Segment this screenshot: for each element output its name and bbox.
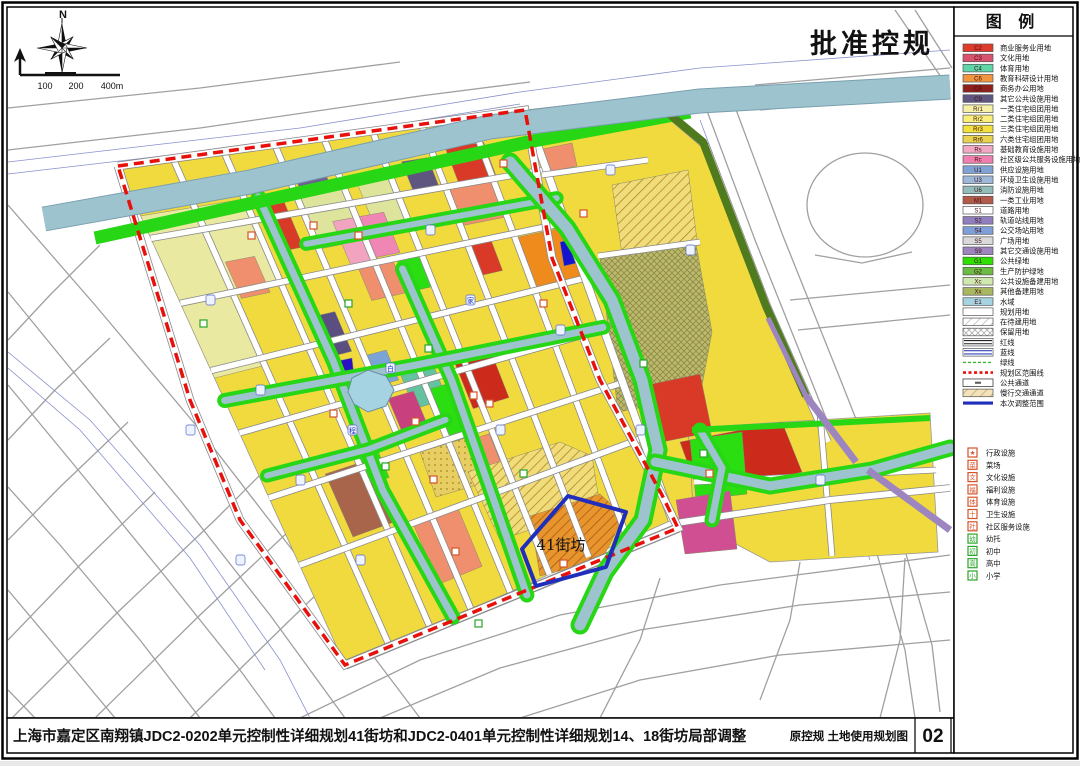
sheet-number: 02	[922, 726, 943, 747]
svg-text:C3: C3	[974, 56, 982, 62]
svg-text:高中: 高中	[986, 559, 1001, 568]
svg-text:U1: U1	[974, 168, 982, 174]
svg-text:菜场: 菜场	[986, 461, 1001, 470]
legend-entry: 在待建用地	[963, 318, 1037, 327]
svg-text:家: 家	[467, 296, 474, 305]
map-canvas: 白程家 41街坊 N 100 200 400m 批准控规 上海市嘉定区南翔镇JD…	[0, 0, 1080, 761]
svg-text:轨道站线用地: 轨道站线用地	[1000, 216, 1044, 225]
svg-text:社: 社	[969, 522, 976, 531]
svg-text:E1: E1	[974, 300, 982, 306]
svg-text:十: 十	[969, 510, 976, 519]
legend-facility-entry: 社社区服务设施	[968, 522, 1030, 532]
svg-text:蓝线: 蓝线	[1000, 348, 1015, 357]
svg-text:慢行交通通道: 慢行交通通道	[1000, 389, 1044, 398]
svg-text:六类住宅组团用地: 六类住宅组团用地	[1000, 135, 1059, 144]
svg-text:程: 程	[349, 426, 356, 435]
svg-text:C6: C6	[974, 76, 982, 82]
block41-label: 41街坊	[536, 536, 585, 554]
svg-text:道路用地: 道路用地	[1000, 206, 1030, 215]
svg-text:S5: S5	[974, 239, 982, 245]
svg-text:高: 高	[969, 559, 976, 568]
svg-text:公共设施备建用地: 公共设施备建用地	[1000, 277, 1059, 286]
map-area: 白程家 41街坊	[8, 10, 952, 718]
svg-text:U6: U6	[974, 188, 982, 194]
compass-rose-icon	[37, 18, 87, 73]
legend-entry: C6教育科研设计用地	[963, 74, 1059, 83]
svg-text:公交场站用地: 公交场站用地	[1000, 226, 1044, 235]
svg-text:C8: C8	[974, 87, 982, 93]
legend-facility-entry: 十卫生设施	[968, 510, 1016, 520]
svg-text:白: 白	[387, 364, 394, 373]
svg-text:其它公共设施用地: 其它公共设施用地	[1000, 94, 1059, 103]
svg-text:Rr2: Rr2	[973, 117, 983, 123]
svg-text:S2: S2	[974, 219, 982, 225]
svg-text:教育科研设计用地: 教育科研设计用地	[1000, 74, 1059, 83]
svg-text:一类工业用地: 一类工业用地	[1000, 196, 1044, 205]
svg-text:文化设施: 文化设施	[986, 473, 1016, 482]
scale-label-400m: 400m	[101, 81, 124, 91]
drawing-title: 上海市嘉定区南翔镇JDC2-0202单元控制性详细规划41街坊和JDC2-040…	[13, 727, 747, 745]
svg-text:基础教育设施用地: 基础教育设施用地	[1000, 145, 1059, 154]
svg-text:本次调整范围: 本次调整范围	[1000, 399, 1044, 408]
svg-text:社区级公共服务设施用地: 社区级公共服务设施用地	[1000, 155, 1080, 164]
scale-label-100: 100	[37, 81, 52, 91]
svg-text:G2: G2	[974, 269, 983, 275]
svg-text:消防设施用地: 消防设施用地	[1000, 186, 1044, 195]
legend-facility-entry: 福福利设施	[968, 485, 1016, 495]
legend-entry: M1一类工业用地	[963, 196, 1044, 205]
legend-entry: Rr6六类住宅组团用地	[963, 135, 1059, 144]
legend-entry: U1供应设施用地	[963, 165, 1044, 174]
svg-text:二类住宅组团用地: 二类住宅组团用地	[1000, 115, 1059, 124]
svg-text:水域: 水域	[1000, 297, 1015, 306]
svg-text:Xx: Xx	[974, 290, 981, 296]
scale-label-200: 200	[68, 81, 83, 91]
svg-text:★: ★	[970, 449, 976, 457]
svg-text:一类住宅组团用地: 一类住宅组团用地	[1000, 104, 1059, 113]
legend-entry: C9其它公共设施用地	[963, 94, 1059, 103]
svg-text:Rr6: Rr6	[973, 137, 983, 143]
legend-entry: C2商业服务业用地	[963, 44, 1052, 53]
legend-entry: 红线	[963, 338, 1015, 347]
svg-text:小: 小	[969, 571, 976, 580]
svg-text:福利设施: 福利设施	[986, 485, 1016, 494]
legend-entry: U3环境卫生设施用地	[963, 175, 1059, 184]
svg-text:Rs: Rs	[974, 148, 981, 154]
svg-text:卫生设施: 卫生设施	[986, 510, 1016, 519]
svg-text:其它交通设施用地: 其它交通设施用地	[1000, 247, 1059, 256]
svg-text:行政设施: 行政设施	[986, 449, 1016, 458]
svg-text:公共通道: 公共通道	[1000, 378, 1030, 387]
svg-text:M1: M1	[974, 198, 983, 204]
legend-facility-entry: ★行政设施	[968, 448, 1016, 458]
svg-text:初: 初	[969, 546, 976, 555]
svg-text:环境卫生设施用地: 环境卫生设施用地	[1000, 175, 1059, 184]
svg-text:初中: 初中	[986, 547, 1001, 556]
legend-title: 图 例	[986, 12, 1040, 31]
svg-text:Rc: Rc	[974, 158, 981, 164]
svg-text:商务办公用地: 商务办公用地	[1000, 84, 1044, 93]
svg-text:体育用地: 体育用地	[1000, 64, 1030, 73]
svg-text:S1: S1	[974, 208, 982, 214]
svg-text:S4: S4	[974, 229, 982, 235]
svg-text:S9: S9	[974, 249, 982, 255]
svg-text:保留用地: 保留用地	[1000, 328, 1030, 337]
svg-text:文: 文	[969, 473, 976, 482]
legend-entry: 慢行交通通道	[963, 389, 1044, 398]
svg-text:公共绿地: 公共绿地	[1000, 257, 1030, 266]
legend-entry: E1水域	[963, 297, 1015, 306]
legend-entry: S9其它交通设施用地	[963, 247, 1059, 256]
legend-entry: Rr1一类住宅组团用地	[963, 104, 1059, 113]
legend-entry: S2轨道站线用地	[963, 216, 1044, 225]
svg-text:菜: 菜	[969, 460, 976, 469]
svg-text:小学: 小学	[986, 572, 1001, 581]
svg-text:供应设施用地: 供应设施用地	[1000, 165, 1044, 174]
svg-text:生产防护绿地: 生产防护绿地	[1000, 267, 1044, 276]
svg-text:绿线: 绿线	[1000, 358, 1015, 367]
svg-text:Rr3: Rr3	[973, 127, 983, 133]
legend-entry: Rr3三类住宅组团用地	[963, 125, 1059, 134]
planning-map-page: 白程家 41街坊 N 100 200 400m 批准控规 上海市嘉定区南翔镇JD…	[0, 0, 1080, 761]
svg-text:社区服务设施: 社区服务设施	[986, 522, 1030, 531]
legend-entry: Rr2二类住宅组团用地	[963, 115, 1059, 124]
legend-entry: G2生产防护绿地	[963, 267, 1044, 276]
svg-text:Xc: Xc	[974, 279, 981, 285]
legend-entry: 蓝线	[963, 348, 1015, 357]
page-title: 批准控规	[810, 29, 934, 59]
svg-text:三类住宅组团用地: 三类住宅组团用地	[1000, 125, 1059, 134]
legend-entry: Xc公共设施备建用地	[963, 277, 1059, 286]
svg-text:C2: C2	[974, 46, 982, 52]
svg-text:规划区范围线: 规划区范围线	[1000, 368, 1044, 377]
svg-text:体育设施: 体育设施	[986, 498, 1016, 507]
legend-facility-entry: 体体育设施	[968, 497, 1016, 507]
svg-text:体: 体	[969, 497, 976, 506]
svg-text:幼托: 幼托	[986, 535, 1001, 544]
drawing-type-label: 原控规 土地使用规划图	[790, 729, 908, 743]
svg-text:其他备建用地: 其他备建用地	[1000, 287, 1044, 296]
legend-entry: Rs基础教育设施用地	[963, 145, 1059, 154]
svg-text:红线: 红线	[1000, 338, 1015, 347]
svg-text:福: 福	[969, 485, 976, 494]
svg-text:文化用地: 文化用地	[1000, 54, 1030, 63]
legend-facility-entry: 文文化设施	[968, 473, 1016, 483]
svg-text:G1: G1	[974, 259, 983, 265]
legend-entry: C8商务办公用地	[963, 84, 1044, 93]
svg-text:C4: C4	[974, 66, 982, 72]
legend-entry: Rc社区级公共服务设施用地	[963, 155, 1080, 164]
legend-entry: U6消防设施用地	[963, 186, 1044, 195]
svg-text:Rr1: Rr1	[973, 107, 983, 113]
svg-text:商业服务业用地: 商业服务业用地	[1000, 44, 1052, 53]
svg-text:广场用地: 广场用地	[1000, 236, 1030, 245]
compass-north-label: N	[59, 9, 67, 21]
svg-text:幼: 幼	[969, 534, 976, 543]
svg-text:C9: C9	[974, 97, 982, 103]
legend-entry: S4公交场站用地	[963, 226, 1044, 235]
svg-text:规划用地: 规划用地	[1000, 307, 1030, 316]
legend-entry: Xx其他备建用地	[963, 287, 1044, 296]
svg-text:U3: U3	[974, 178, 982, 184]
svg-text:在待建用地: 在待建用地	[1000, 318, 1037, 327]
